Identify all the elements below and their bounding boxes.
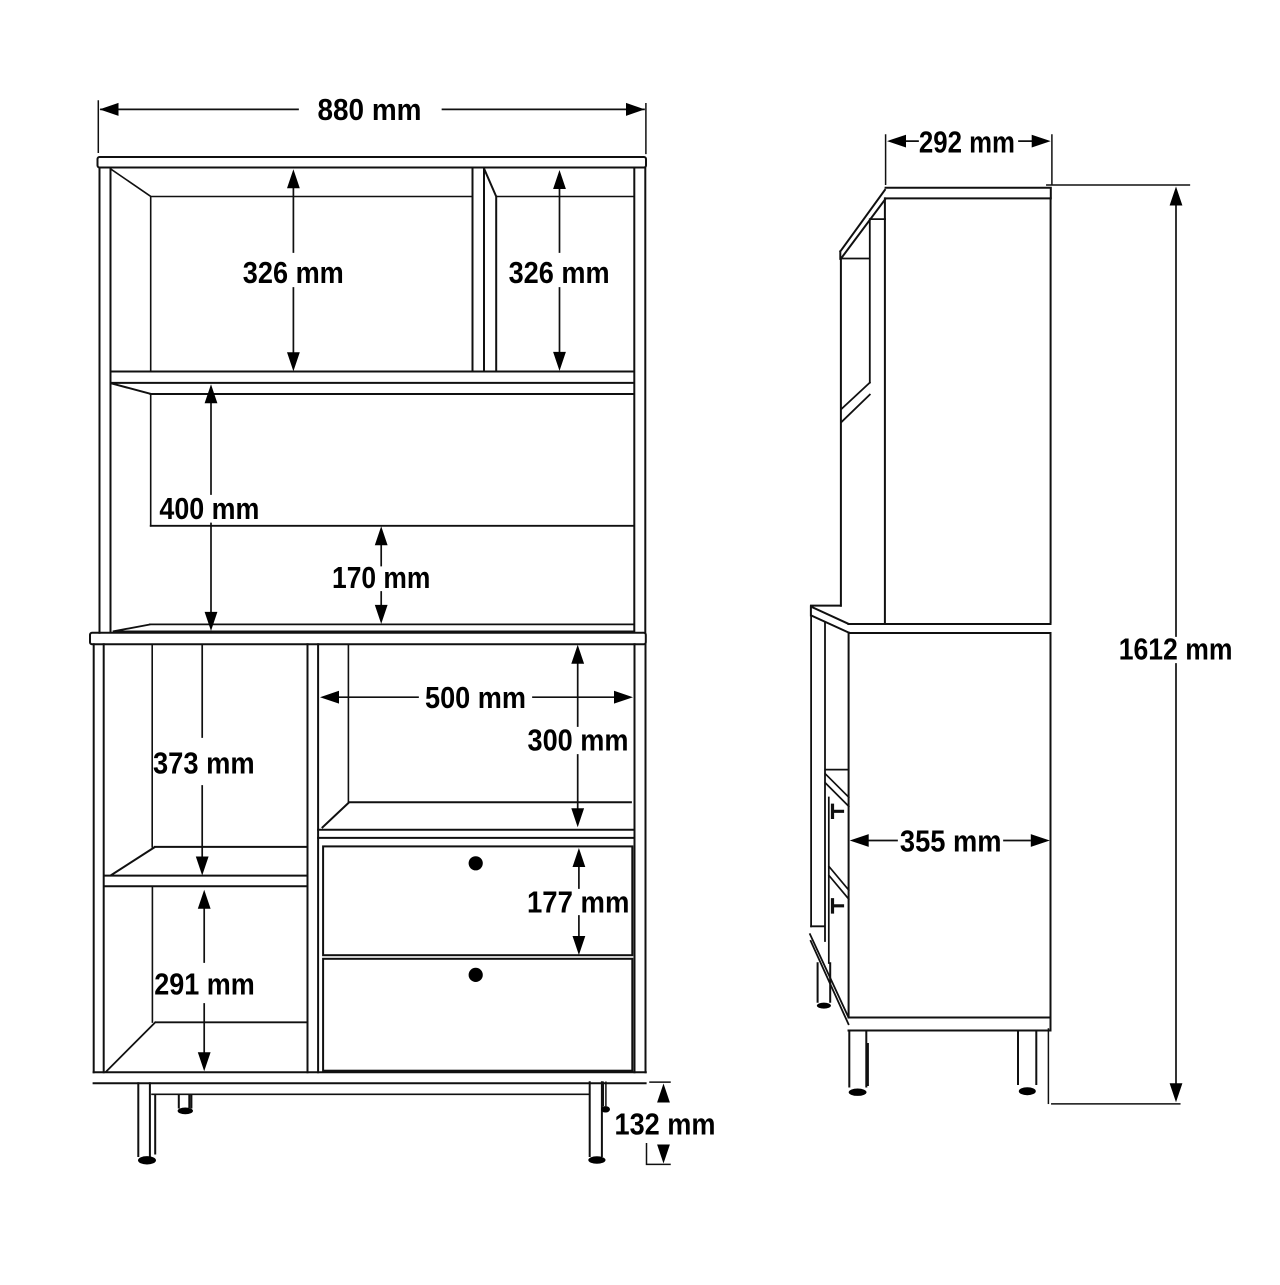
svg-text:300 mm: 300 mm (528, 724, 629, 758)
svg-text:132 mm: 132 mm (615, 1108, 716, 1142)
svg-text:292 mm: 292 mm (919, 125, 1015, 159)
svg-text:355 mm: 355 mm (900, 825, 1002, 859)
svg-text:170 mm: 170 mm (332, 561, 430, 595)
svg-text:1612 mm: 1612 mm (1119, 633, 1233, 667)
svg-text:400 mm: 400 mm (159, 492, 259, 526)
svg-text:177 mm: 177 mm (527, 886, 629, 920)
svg-text:500 mm: 500 mm (425, 681, 526, 715)
svg-text:373 mm: 373 mm (153, 747, 255, 781)
svg-text:326 mm: 326 mm (509, 256, 610, 290)
svg-text:880 mm: 880 mm (318, 93, 422, 127)
svg-text:326 mm: 326 mm (243, 256, 344, 290)
svg-text:291 mm: 291 mm (154, 968, 255, 1002)
